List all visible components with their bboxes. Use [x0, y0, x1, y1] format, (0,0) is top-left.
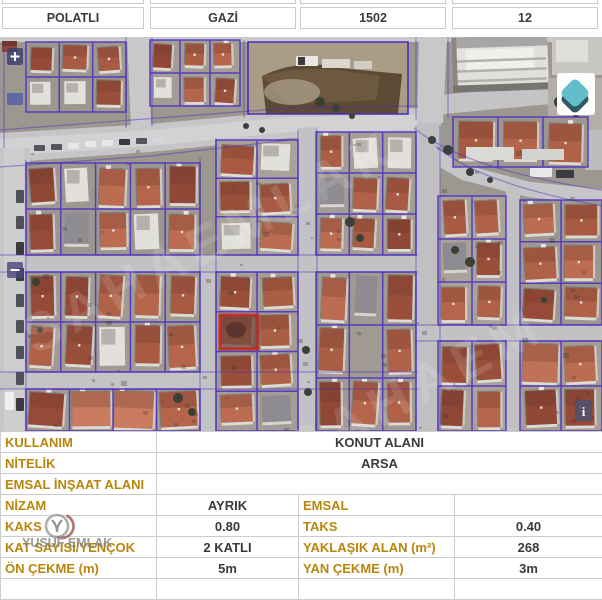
svg-text:i: i: [582, 404, 586, 419]
svg-text:YUSUF EMLAK: YUSUF EMLAK: [22, 536, 112, 550]
